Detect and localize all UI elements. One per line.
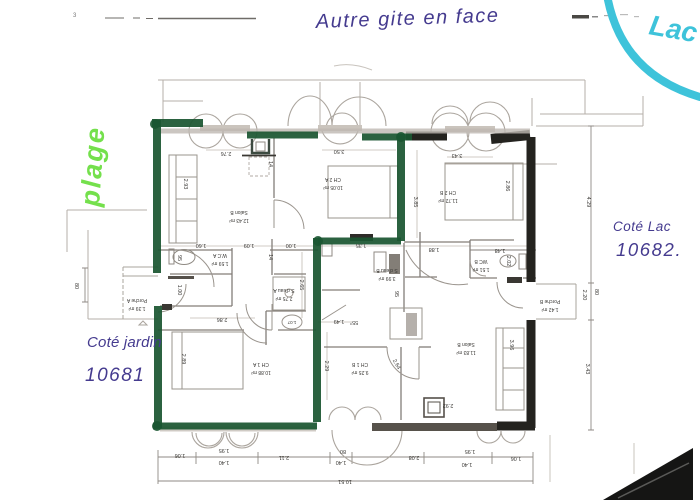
svg-text:11.72 m²: 11.72 m²	[438, 197, 458, 203]
svg-text:2.89: 2.89	[180, 354, 186, 365]
svg-text:14: 14	[267, 161, 273, 167]
svg-text:12.43 m²: 12.43 m²	[229, 217, 249, 223]
svg-text:14: 14	[267, 254, 273, 260]
svg-text:1.95: 1.95	[219, 447, 230, 453]
svg-text:4.29: 4.29	[585, 197, 591, 208]
svg-text:Salon B: Salon B	[230, 209, 248, 215]
svg-text:1.00: 1.00	[286, 242, 297, 248]
svg-text:1.51 m²: 1.51 m²	[472, 266, 489, 272]
svg-text:1.40: 1.40	[336, 459, 347, 465]
svg-text:Lac: Lac	[647, 9, 700, 48]
svg-text:10681: 10681	[85, 365, 145, 386]
svg-text:1.35: 1.35	[356, 242, 367, 248]
svg-text:WC B: WC B	[474, 258, 488, 264]
svg-text:3.43: 3.43	[452, 152, 463, 158]
svg-text:2.76: 2.76	[221, 150, 232, 156]
svg-text:Coté Lac: Coté Lac	[613, 219, 671, 234]
svg-text:Salon B: Salon B	[457, 341, 475, 347]
svg-text:1.60: 1.60	[196, 242, 207, 248]
svg-text:Porche A: Porche A	[126, 297, 147, 303]
svg-text:95: 95	[176, 255, 182, 261]
svg-text:S d'eau A: S d'eau A	[273, 287, 295, 293]
svg-text:10.05 m²: 10.05 m²	[323, 184, 343, 190]
svg-text:1.06: 1.06	[511, 455, 522, 461]
svg-text:2.08: 2.08	[409, 454, 420, 460]
svg-text:1.59 m²: 1.59 m²	[211, 260, 228, 266]
svg-text:3.99 m²: 3.99 m²	[378, 275, 395, 281]
svg-text:3.85: 3.85	[412, 197, 418, 208]
svg-text:1.07: 1.07	[287, 320, 296, 325]
svg-text:2.86: 2.86	[504, 181, 510, 192]
svg-text:1.06: 1.06	[175, 452, 186, 458]
svg-text:55°: 55°	[350, 319, 358, 325]
svg-text:CH 2 A: CH 2 A	[324, 176, 341, 182]
svg-text:2.02: 2.02	[505, 256, 511, 267]
svg-text:Porche B: Porche B	[539, 298, 560, 304]
svg-text:1.95: 1.95	[465, 448, 476, 454]
svg-text:3: 3	[73, 13, 77, 19]
svg-text:2.92: 2.92	[443, 402, 454, 408]
svg-text:1.40: 1.40	[462, 461, 473, 467]
svg-text:1.39 m²: 1.39 m²	[128, 305, 145, 311]
svg-text:2.65: 2.65	[298, 280, 304, 291]
svg-text:2.86: 2.86	[217, 316, 228, 322]
svg-text:3.96: 3.96	[508, 340, 514, 351]
svg-text:9.25 m²: 9.25 m²	[351, 369, 368, 375]
svg-text:1.42 m²: 1.42 m²	[541, 306, 558, 312]
svg-text:2.75 m²: 2.75 m²	[275, 295, 292, 301]
svg-text:10682.: 10682.	[616, 239, 682, 260]
svg-text:1.00: 1.00	[176, 285, 182, 296]
svg-text:1.09: 1.09	[244, 242, 255, 248]
svg-text:1.88: 1.88	[429, 246, 440, 252]
svg-text:11.83 m²: 11.83 m²	[456, 349, 476, 355]
svg-text:3.50: 3.50	[334, 148, 345, 154]
svg-text:95: 95	[393, 291, 399, 297]
svg-text:1.49: 1.49	[334, 318, 345, 324]
svg-text:W.C A: W.C A	[212, 252, 227, 258]
svg-text:S d'eau B: S d'eau B	[376, 267, 398, 273]
svg-text:2.29: 2.29	[323, 361, 329, 372]
svg-text:1.48: 1.48	[495, 247, 506, 253]
svg-text:80: 80	[73, 283, 79, 289]
svg-text:CH 1 B: CH 1 B	[351, 361, 368, 367]
svg-text:80: 80	[593, 289, 599, 295]
svg-text:10.88 m²: 10.88 m²	[251, 369, 271, 375]
svg-text:80: 80	[340, 448, 346, 454]
svg-text:2.20: 2.20	[581, 290, 587, 301]
svg-text:3.43: 3.43	[584, 364, 590, 375]
svg-text:2.11: 2.11	[279, 454, 289, 460]
svg-text:Coté jardin: Coté jardin	[87, 334, 162, 351]
svg-text:1.40: 1.40	[219, 459, 230, 465]
svg-text:2.93: 2.93	[182, 179, 188, 190]
svg-text:plage: plage	[75, 125, 111, 208]
svg-text:CH 1 A: CH 1 A	[252, 361, 269, 367]
svg-text:CH 2 B: CH 2 B	[439, 189, 456, 195]
svg-text:Autre gite en face: Autre gite en face	[314, 5, 499, 33]
svg-text:10.51: 10.51	[338, 478, 352, 484]
